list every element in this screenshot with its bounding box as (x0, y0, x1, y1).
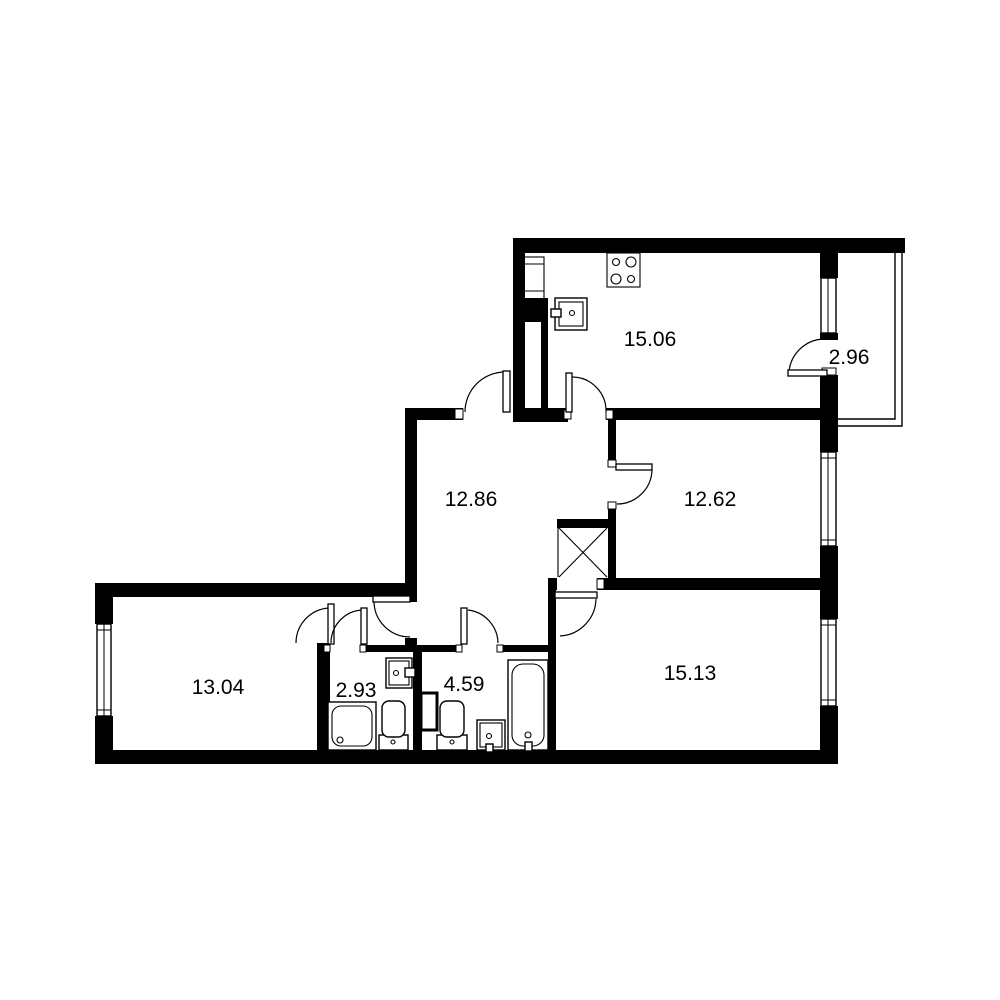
bedroom-right-door (608, 460, 652, 509)
wc-door (456, 608, 503, 652)
window-balcony-partition (821, 278, 836, 333)
window-living-room (821, 619, 836, 706)
balcony-glazing (838, 250, 902, 426)
room-label-bedroom-right: 12.62 (684, 488, 737, 511)
room-label-living-room: 15.13 (664, 662, 717, 685)
duct-shaft-top (525, 298, 548, 322)
lobby-door (373, 596, 410, 637)
duct-box-icon (421, 693, 437, 730)
south-rooms-top-wall-west (548, 578, 557, 590)
toilet-icon-bathroom (379, 701, 408, 750)
wc-top-wall-west (417, 645, 462, 652)
living-room-door (555, 579, 604, 636)
window-bedroom-right (821, 452, 836, 546)
room-label-hallway: 12.86 (445, 488, 498, 511)
doors (296, 339, 836, 652)
washbasin-icon (477, 720, 505, 752)
kitchen-sink-icon (551, 298, 587, 330)
floor-plan: 15.06 2.96 12.62 12.86 13.04 2.93 4.59 1… (0, 0, 1000, 1000)
floor-plan-canvas: 15.06 2.96 12.62 12.86 13.04 2.93 4.59 1… (0, 0, 1000, 1000)
wc-living-wall (548, 590, 556, 764)
room-label-toilet-room: 4.59 (444, 673, 485, 696)
left-wall-pier-1 (95, 583, 113, 624)
bedroom-left-door (296, 604, 334, 644)
hallway-right-wall-lower (608, 504, 616, 580)
room-label-kitchen: 15.06 (624, 328, 677, 351)
duct-shaft-bottom (513, 408, 568, 422)
vent-shaft-top-edge (557, 519, 616, 528)
duct-shaft-left (513, 322, 525, 420)
vent-shaft-icon (558, 528, 607, 577)
right-wall-pier-3 (820, 375, 838, 452)
right-wall-pier-1 (820, 253, 838, 278)
room-label-bathroom: 2.93 (336, 679, 377, 702)
stove-icon (607, 253, 640, 287)
kitchen-bottom-wall (606, 408, 838, 420)
exterior-wall-bottom (95, 750, 838, 764)
wc-top-wall-east (500, 645, 548, 652)
kitchen-door (564, 373, 613, 419)
bathroom-top-wall (363, 645, 417, 652)
entrance-door (455, 371, 510, 419)
hallway-left-wall (405, 408, 417, 602)
room-label-bedroom-left: 13.04 (192, 676, 245, 699)
exterior-wall-top (513, 238, 905, 253)
shower-tray-icon (328, 702, 376, 750)
room-label-balcony: 2.96 (829, 346, 870, 369)
bedroom-left-top-wall (95, 583, 417, 597)
duct-shaft-right (541, 322, 548, 408)
wall-sink-icon (386, 658, 415, 688)
bathtub-icon (508, 660, 548, 751)
kitchen-left-wall (513, 253, 525, 322)
toilet-icon-wc (437, 701, 467, 750)
window-bedroom-left (97, 624, 111, 716)
cabinet-icon (524, 257, 544, 299)
south-rooms-top-wall (597, 578, 838, 590)
